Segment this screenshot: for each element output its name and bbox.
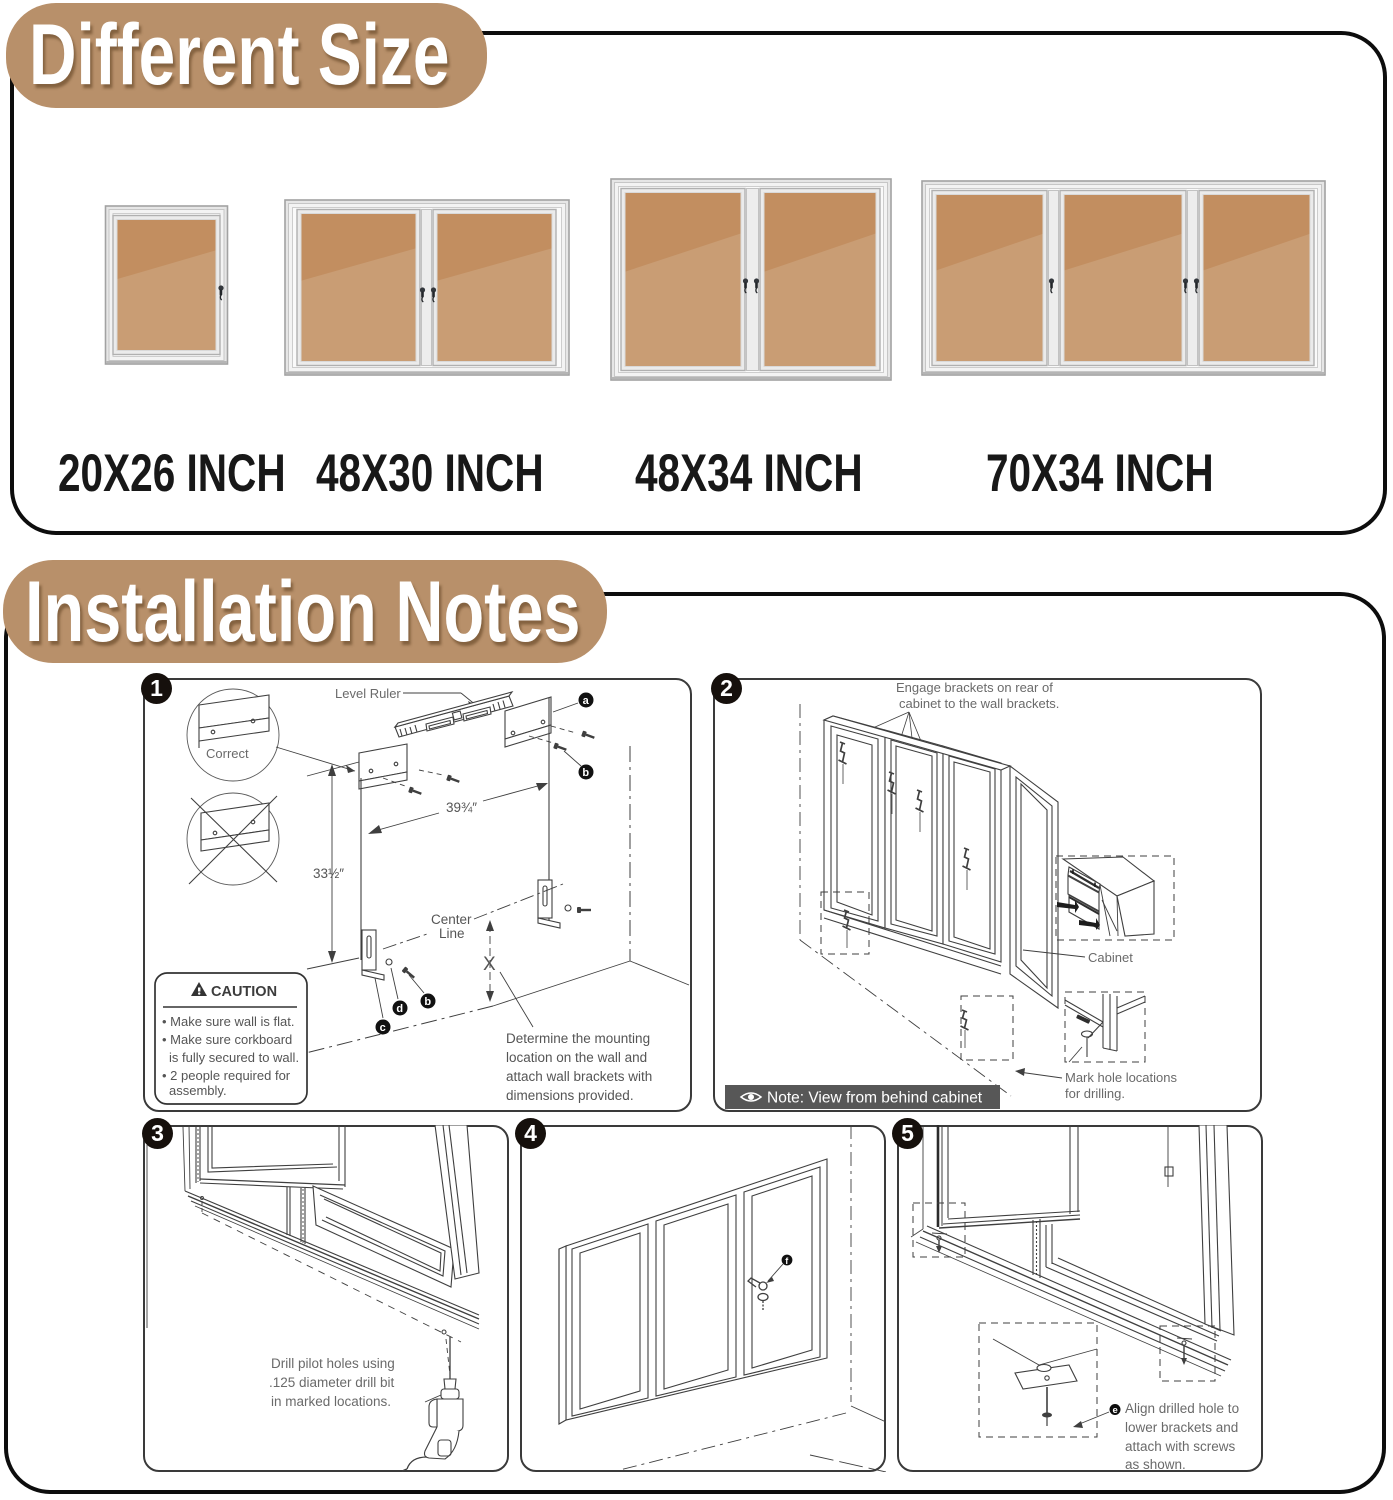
svg-text:attach with screws: attach with screws — [1125, 1439, 1236, 1454]
svg-text:Line: Line — [439, 926, 465, 941]
svg-text:attach wall brackets with: attach wall brackets with — [506, 1069, 652, 1084]
svg-text:location on the wall and: location on the wall and — [506, 1050, 647, 1065]
svg-text:assembly.: assembly. — [169, 1083, 227, 1098]
svg-text:CAUTION: CAUTION — [211, 984, 277, 1000]
svg-text:is fully secured to wall.: is fully secured to wall. — [169, 1050, 299, 1065]
svg-text:.125 diameter drill bit: .125 diameter drill bit — [269, 1375, 395, 1390]
svg-text:c: c — [380, 1022, 386, 1034]
svg-text:Correct: Correct — [206, 746, 249, 761]
svg-text:Center: Center — [431, 912, 472, 927]
svg-text:Determine the mounting: Determine the mounting — [506, 1031, 650, 1046]
svg-text:b: b — [424, 996, 431, 1008]
svg-text:dimensions provided.: dimensions provided. — [506, 1088, 634, 1103]
svg-text:lower brackets and: lower brackets and — [1125, 1420, 1238, 1435]
svg-text:• Make sure corkboard: • Make sure corkboard — [162, 1032, 292, 1047]
svg-text:• Make sure wall is flat.: • Make sure wall is flat. — [162, 1014, 294, 1029]
svg-text:d: d — [396, 1003, 403, 1015]
svg-text:39¾″: 39¾″ — [446, 800, 477, 815]
svg-text:cabinet to the wall brackets.: cabinet to the wall brackets. — [899, 696, 1059, 711]
svg-text:as shown.: as shown. — [1125, 1457, 1186, 1472]
svg-text:in marked locations.: in marked locations. — [271, 1394, 391, 1409]
svg-text:Level Ruler: Level Ruler — [335, 686, 401, 701]
svg-text:• 2 people required for: • 2 people required for — [162, 1068, 291, 1083]
svg-text:b: b — [582, 767, 589, 779]
svg-text:for drilling.: for drilling. — [1065, 1086, 1125, 1101]
svg-text:X: X — [483, 954, 496, 975]
svg-text:Engage brackets on rear of: Engage brackets on rear of — [896, 680, 1053, 695]
svg-text:e: e — [1113, 1405, 1118, 1416]
svg-text:Mark hole locations: Mark hole locations — [1065, 1070, 1177, 1085]
svg-text:Align drilled hole to: Align drilled hole to — [1125, 1401, 1239, 1416]
svg-text:Note: View from behind cabinet: Note: View from behind cabinet — [767, 1090, 983, 1107]
svg-text:33½″: 33½″ — [313, 866, 344, 881]
svg-text:Drill pilot holes using: Drill pilot holes using — [271, 1356, 395, 1371]
svg-text:a: a — [583, 695, 590, 707]
svg-text:Cabinet: Cabinet — [1088, 950, 1133, 965]
